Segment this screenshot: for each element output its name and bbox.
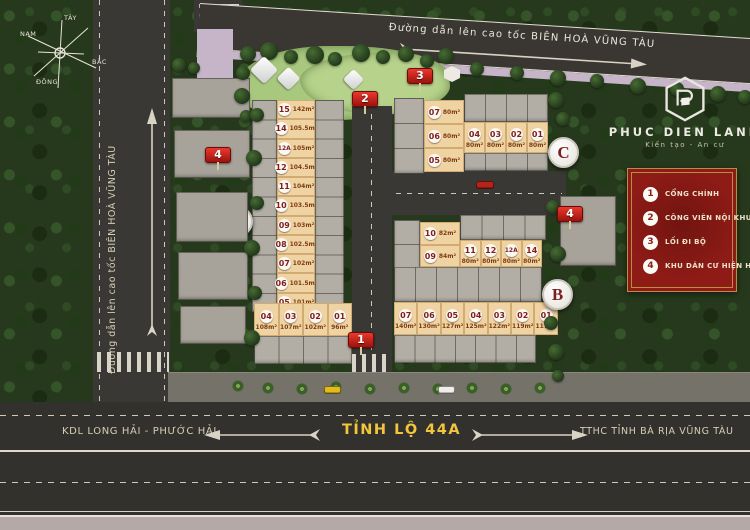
existing-house — [176, 192, 248, 242]
tree — [284, 50, 298, 64]
lot-number: 07 — [399, 309, 412, 322]
lot-number: 02 — [516, 309, 529, 322]
lot-C-02: 0280m² — [506, 122, 527, 153]
marker-existing_right: 4 — [557, 206, 583, 222]
lot-A-10: 10103.5m² — [277, 196, 315, 215]
lot-area: 102.5m² — [290, 241, 318, 248]
road-divider-line — [0, 450, 750, 452]
lot-number: 05 — [428, 154, 441, 167]
tree — [328, 52, 342, 66]
lot-number: 05 — [446, 309, 459, 322]
palm-tree — [398, 382, 410, 394]
lot-area: 103.5m² — [290, 202, 318, 209]
lot-C-07: 0780m² — [424, 100, 464, 124]
lot-B-04: 04125m² — [464, 302, 487, 335]
lot-number: 12A — [505, 244, 518, 257]
lot-number: 06 — [428, 130, 441, 143]
lot-number: 10 — [424, 227, 437, 240]
tree — [510, 66, 524, 80]
marker-park: 2 — [352, 91, 378, 107]
compass-east-label: ĐÔNG — [36, 78, 58, 86]
lot-A-07: 07102m² — [277, 254, 315, 273]
lot-A-11: 11104m² — [277, 177, 315, 196]
lot-area: 101.5m² — [290, 280, 318, 287]
tree — [236, 66, 250, 80]
lot-A-01: 0196m² — [328, 303, 353, 336]
lot-area: 102m² — [305, 324, 326, 331]
lot-number: 04 — [469, 309, 482, 322]
tree — [352, 44, 370, 62]
tree — [306, 46, 324, 64]
legend-item-1: 1CỔNG CHÍNH — [643, 187, 732, 202]
lot-C-06: 0680m² — [424, 124, 464, 148]
lot-area: 140m² — [395, 323, 416, 330]
block-A-lot-row: 04108m²03107m²02102m²0196m² — [254, 303, 352, 336]
lot-area: 96m² — [331, 324, 348, 331]
lot-area: 80m² — [443, 109, 460, 116]
lot-A-15: 15142m² — [277, 100, 315, 119]
tree — [234, 88, 250, 104]
internal-road — [392, 171, 566, 215]
lot-number: 12 — [484, 244, 497, 257]
block-B-lot-mid-row: 1180m²1280m²12A80m²1480m² — [460, 240, 542, 267]
legend-label: KHU DÂN CƯ HIỆN HỮU — [665, 262, 750, 270]
lot-C-01: 0180m² — [527, 122, 548, 153]
block-C-badge: C — [548, 137, 579, 168]
legend-items: 1CỔNG CHÍNH2CÔNG VIÊN NỘI KHU3LỐI ĐI BỘ4… — [631, 172, 733, 288]
marker-gate: 1 — [348, 332, 374, 348]
crosswalk — [352, 354, 392, 372]
site-sidewalk — [168, 372, 750, 402]
road-center-line — [396, 193, 562, 194]
tree — [250, 196, 264, 210]
tree — [470, 62, 484, 76]
block-A-buildings-south — [254, 336, 352, 364]
tree — [244, 240, 260, 256]
lot-area: 122m² — [489, 323, 510, 330]
lot-area: 80m² — [462, 258, 479, 265]
compass-north-label: BẮC — [92, 58, 107, 66]
palm-tree — [262, 382, 274, 394]
lot-A-04: 04108m² — [254, 303, 279, 336]
brand-name: PHUC DIEN LAND — [609, 125, 750, 139]
lot-number: 03 — [493, 309, 506, 322]
lot-area: 127m² — [442, 323, 463, 330]
crosswalk — [97, 352, 169, 372]
block-B-buildings-north — [460, 215, 546, 240]
lot-C-05: 0580m² — [424, 148, 464, 172]
lot-B-14: 1480m² — [522, 240, 543, 267]
lot-number: 07 — [428, 106, 441, 119]
left-road-direction-arrow — [145, 108, 159, 336]
block-A-lot-column: 15142m²14105.5m²12A105m²12104.5m²11104m²… — [277, 100, 315, 312]
lot-B-06: 06130m² — [417, 302, 440, 335]
lot-area: 102m² — [293, 260, 314, 267]
tree — [552, 370, 564, 382]
lot-B-10: 1082m² — [420, 222, 460, 245]
lot-area: 103m² — [293, 222, 314, 229]
lot-A-09: 09103m² — [277, 216, 315, 235]
block-B-badge: B — [542, 279, 573, 310]
tree — [548, 92, 564, 108]
lot-area: 130m² — [418, 323, 439, 330]
block-B-buildings-mid — [394, 267, 542, 302]
lot-number: 06 — [275, 277, 288, 290]
legend-number: 3 — [643, 235, 658, 250]
tree — [248, 286, 262, 300]
lot-area: 142m² — [293, 106, 314, 113]
lot-number: 11 — [464, 244, 477, 257]
compass: TÂY NAM BẮC ĐÔNG — [8, 6, 112, 98]
legend-label: LỐI ĐI BỘ — [665, 238, 706, 246]
master-plan-map: Đường dẫn lên cao tốc BIÊN HOÀ VŨNG TÀU … — [0, 0, 750, 530]
legend-item-4: 4KHU DÂN CƯ HIỆN HỮU — [643, 259, 732, 274]
block-C-lot-row: 0480m²0380m²0280m²0180m² — [464, 122, 548, 153]
lot-area: 105.5m² — [290, 125, 318, 132]
compass-south-label: NAM — [20, 30, 36, 38]
lot-number: 14 — [275, 122, 288, 135]
lot-A-12: 12104.5m² — [277, 158, 315, 177]
tree — [240, 46, 256, 62]
lot-area: 80m² — [508, 142, 525, 149]
existing-house — [180, 306, 246, 344]
lot-area: 108m² — [256, 324, 277, 331]
car — [324, 386, 341, 394]
legend-number: 1 — [643, 187, 658, 202]
block-B-buildings-south — [394, 335, 536, 363]
east-direction-arrow — [470, 428, 588, 442]
lot-number: 09 — [278, 219, 291, 232]
tree — [550, 70, 566, 86]
lot-area: 80m² — [487, 142, 504, 149]
bottom-road-name: TỈNH LỘ 44A — [342, 422, 461, 438]
tree — [420, 54, 434, 68]
lot-number: 10 — [275, 199, 288, 212]
tree — [376, 50, 390, 64]
phuc-dien-land-logo-icon — [664, 76, 706, 122]
lot-area: 80m² — [503, 258, 520, 265]
bottom-road-west-label: KDL LONG HẢI - PHƯỚC HẢI — [62, 426, 217, 437]
marker-existing_left: 4 — [205, 147, 231, 163]
lot-area: 107m² — [280, 324, 301, 331]
palm-tree — [466, 382, 478, 394]
legend: 1CỔNG CHÍNH2CÔNG VIÊN NỘI KHU3LỐI ĐI BỘ4… — [627, 168, 737, 292]
lot-area: 104.5m² — [290, 164, 318, 171]
lot-area: 105m² — [293, 145, 314, 152]
bottom-sidewalk — [0, 515, 750, 530]
car — [438, 386, 455, 394]
lot-number: 12A — [278, 142, 291, 155]
lot-B-12A: 12A80m² — [501, 240, 522, 267]
lot-number: 12 — [275, 161, 288, 174]
block-A-buildings-east — [315, 100, 344, 312]
legend-item-2: 2CÔNG VIÊN NỘI KHU — [643, 211, 732, 226]
block-C-buildings-west — [394, 98, 424, 174]
tree — [244, 330, 260, 346]
tree — [398, 46, 414, 62]
road-lane-line — [0, 482, 750, 483]
lot-number: 02 — [510, 128, 523, 141]
road-center-line — [371, 114, 372, 350]
palm-tree — [364, 383, 376, 395]
west-direction-arrow — [204, 428, 322, 442]
compass-west-label: TÂY — [64, 14, 77, 22]
bottom-road: KDL LONG HẢI - PHƯỚC HẢI TỈNH LỘ 44A TTH… — [0, 402, 750, 515]
lot-B-02: 02119m² — [511, 302, 534, 335]
block-B-lot-row: 07140m²06130m²05127m²04125m²03122m²02119… — [394, 302, 536, 335]
lot-area: 84m² — [439, 253, 456, 260]
lot-number: 03 — [489, 128, 502, 141]
lot-area: 119m² — [512, 323, 533, 330]
lot-C-03: 0380m² — [485, 122, 506, 153]
lot-number: 01 — [531, 128, 544, 141]
lot-number: 09 — [424, 250, 437, 263]
legend-item-3: 3LỐI ĐI BỘ — [643, 235, 732, 250]
brand-tagline: Kiến tạo - An cư — [645, 141, 725, 149]
lot-B-12: 1280m² — [481, 240, 502, 267]
legend-label: CỔNG CHÍNH — [665, 190, 719, 198]
lot-B-11: 1180m² — [460, 240, 481, 267]
lot-number: 07 — [278, 257, 291, 270]
block-C-carports — [464, 153, 548, 171]
lot-area: 104m² — [293, 183, 314, 190]
compass-rose-icon — [8, 6, 112, 98]
lot-C-04: 0480m² — [464, 122, 485, 153]
palm-tree — [296, 383, 308, 395]
tree — [188, 62, 200, 74]
lot-number: 02 — [309, 310, 322, 323]
lot-A-02: 02102m² — [303, 303, 328, 336]
road-edge-line — [164, 0, 165, 404]
lot-A-12A: 12A105m² — [277, 139, 315, 158]
lot-area: 80m² — [529, 142, 546, 149]
lot-number: 08 — [275, 238, 288, 251]
lot-A-08: 08102.5m² — [277, 235, 315, 254]
tree — [172, 58, 186, 72]
lot-number: 11 — [278, 180, 291, 193]
tree — [438, 48, 454, 64]
lot-A-03: 03107m² — [279, 303, 304, 336]
marker-walkway: 3 — [407, 68, 433, 84]
legend-number: 2 — [643, 211, 658, 226]
lot-number: 01 — [333, 310, 346, 323]
tree — [250, 108, 264, 122]
lot-B-09: 0984m² — [420, 245, 460, 268]
existing-house — [178, 252, 248, 300]
legend-number: 4 — [643, 259, 658, 274]
lot-number: 03 — [284, 310, 297, 323]
lot-B-03: 03122m² — [488, 302, 511, 335]
car — [476, 181, 494, 189]
tree — [246, 150, 262, 166]
tree — [548, 344, 564, 360]
tree — [590, 74, 604, 88]
tree — [550, 246, 566, 262]
lot-number: 04 — [260, 310, 273, 323]
road-edge-line — [0, 511, 750, 512]
bottom-road-east-label: TTHC TỈNH BÀ RỊA VŨNG TÀU — [580, 426, 734, 437]
block-C-buildings-north — [464, 94, 548, 122]
lot-area: 80m² — [443, 133, 460, 140]
lot-area: 125m² — [465, 323, 486, 330]
legend-label: CÔNG VIÊN NỘI KHU — [665, 214, 750, 222]
block-C-lot-column: 0780m²0680m²0580m² — [424, 100, 464, 172]
lot-A-14: 14105.5m² — [277, 119, 315, 138]
lot-area: 80m² — [443, 157, 460, 164]
lot-A-06: 06101.5m² — [277, 273, 315, 292]
lot-number: 14 — [525, 244, 538, 257]
lot-number: 04 — [468, 128, 481, 141]
palm-tree — [534, 382, 546, 394]
lot-area: 80m² — [523, 258, 540, 265]
lot-area: 80m² — [466, 142, 483, 149]
tree — [544, 316, 558, 330]
tree — [556, 112, 570, 126]
brand-logo: PHUC DIEN LAND Kiến tạo - An cư — [618, 76, 750, 164]
lot-number: 15 — [278, 103, 291, 116]
lot-area: 80m² — [482, 258, 499, 265]
lot-B-05: 05127m² — [441, 302, 464, 335]
road-lane-line — [0, 415, 750, 416]
lot-B-07: 07140m² — [394, 302, 417, 335]
lot-area: 82m² — [439, 230, 456, 237]
palm-tree — [232, 380, 244, 392]
palm-tree — [500, 383, 512, 395]
lot-number: 06 — [423, 309, 436, 322]
